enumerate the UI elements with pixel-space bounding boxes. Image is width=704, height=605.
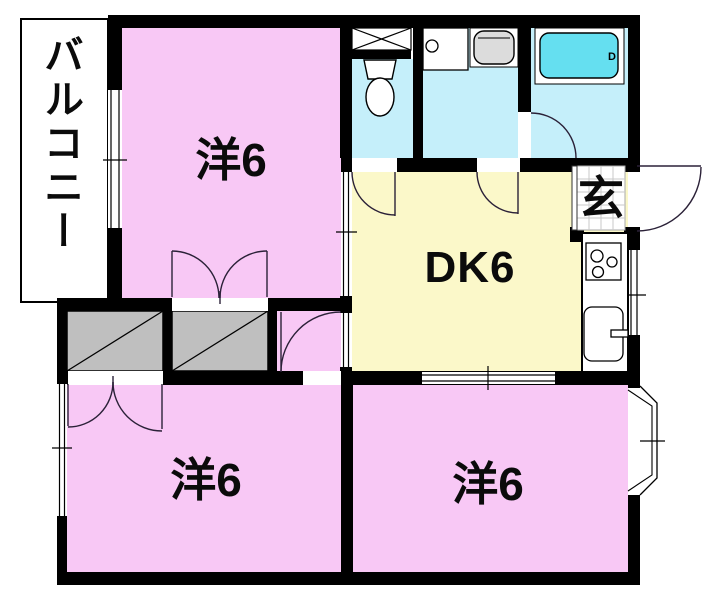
sliding-door-dk-hallway [341, 313, 351, 367]
entrance-label: 玄 [578, 175, 624, 221]
gap-bath-door [518, 112, 531, 158]
toilet-shelf-icon [352, 28, 411, 50]
wall-top-outer [108, 15, 640, 28]
wall-toilet-shelf-bar [352, 50, 411, 59]
wall-bl-left-top [57, 371, 67, 384]
room-top-label: 洋6 [195, 137, 267, 183]
wall-closet-left-outer [57, 311, 67, 371]
hallway-floor [277, 311, 341, 371]
washer-pan-icon [423, 28, 468, 70]
window-room-top-balcony [108, 90, 122, 228]
sliding-door-dk-room-top [341, 172, 351, 296]
gap-hallway-door [303, 371, 341, 385]
dining-kitchen-label: DK6 [424, 246, 515, 290]
wall-closets-divider [163, 311, 172, 371]
kitchen-sink-icon [584, 307, 628, 361]
wall-right-lower [628, 495, 640, 585]
room-bottom-left-label: 洋6 [170, 457, 242, 503]
wall-bl-left-bottom [57, 516, 67, 572]
floor-plan-drawing: D [0, 0, 704, 605]
bay-window [628, 386, 665, 495]
wall-center-upper [340, 15, 352, 158]
wall-toilet-washroom [413, 15, 423, 158]
bathtub-drain-mark: D [608, 51, 616, 63]
washbasin-icon [470, 28, 518, 67]
kitchen-unit [582, 233, 628, 372]
window-kitchen [628, 250, 640, 335]
wall-right-upper [628, 15, 640, 170]
floor-plan: D [0, 0, 704, 605]
gap-toilet-door [352, 158, 397, 172]
wall-right-kitchen-below [628, 335, 640, 388]
bathtub-icon: D [535, 28, 624, 84]
wall-closet-right-outer [268, 311, 277, 371]
entrance-step-edge [572, 166, 577, 230]
entrance-door-arc [637, 166, 701, 231]
gap-washroom-door [477, 158, 520, 172]
gap-closet-doors-bottom [68, 371, 163, 385]
wall-center-mid [340, 296, 352, 313]
stove-icon [586, 243, 621, 280]
window-room-bottom-left [57, 384, 67, 516]
wall-bottom-rooms-divider [341, 371, 353, 585]
balcony-label: バルコニー [40, 34, 80, 302]
room-bottom-right-label: 洋6 [452, 461, 524, 507]
toilet-icon [364, 60, 396, 116]
